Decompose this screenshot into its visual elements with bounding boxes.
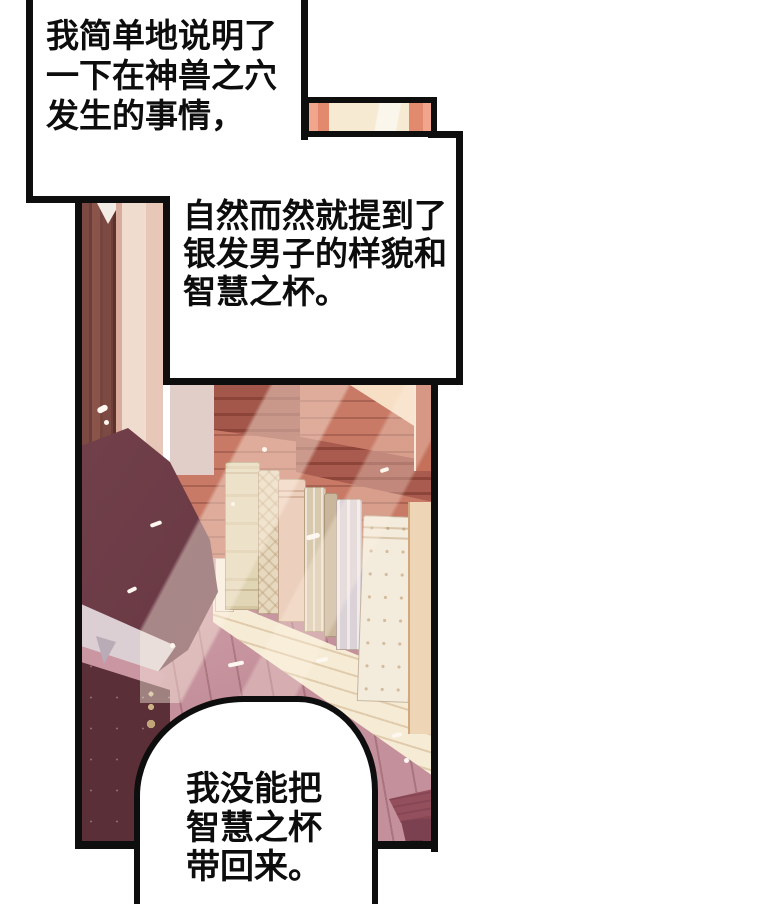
- book-spine-6: [336, 499, 362, 650]
- sparkle: [262, 447, 267, 452]
- speech-text-bottom: 我没能把 智慧之杯 带回来。: [186, 770, 322, 887]
- sparkle: [104, 420, 109, 425]
- narration-line: 智慧之杯。: [183, 274, 447, 312]
- narration-line: 我简单地说明了: [46, 17, 277, 57]
- bubble-border: [163, 196, 170, 385]
- speech-line: 智慧之杯: [186, 809, 322, 848]
- book-spine-3: [278, 479, 306, 622]
- panel-border-right: [431, 378, 438, 852]
- speech-line: 带回来。: [186, 848, 322, 887]
- bubble-border: [163, 378, 463, 385]
- chest-emblem: [141, 686, 161, 738]
- book-spine-7: [357, 515, 415, 703]
- speech-line: 我没能把: [186, 770, 322, 809]
- bubble-border: [26, 0, 33, 203]
- window-sill-fragment: [303, 97, 437, 137]
- window-pillar: [81, 203, 116, 478]
- sparkle: [150, 520, 163, 528]
- narration-text-top: 我简单地说明了 一下在神兽之穴 发生的事情，: [46, 17, 277, 137]
- narration-line: 一下在神兽之穴: [46, 57, 277, 97]
- book-spine-4: [304, 487, 326, 632]
- book-spine-1: [225, 462, 260, 610]
- wall-lit-corner: [170, 385, 214, 475]
- bubble-border: [26, 196, 170, 203]
- narration-line: 发生的事情，: [46, 97, 277, 137]
- sparkle: [404, 758, 409, 763]
- bubble-border: [456, 131, 463, 385]
- panel-border-left: [75, 203, 82, 848]
- sparkle: [170, 643, 175, 648]
- comic-page: 我简单地说明了 一下在神兽之穴 发生的事情， 自然而然就提到了 银发男子的样貌和…: [0, 0, 760, 904]
- narration-line: 银发男子的样貌和: [183, 236, 447, 274]
- curtain: [116, 203, 163, 478]
- narration-text-middle: 自然而然就提到了 银发男子的样貌和 智慧之杯。: [183, 198, 447, 312]
- book-spine-2: [258, 470, 280, 614]
- narration-line: 自然而然就提到了: [183, 198, 447, 236]
- sparkle: [231, 502, 235, 506]
